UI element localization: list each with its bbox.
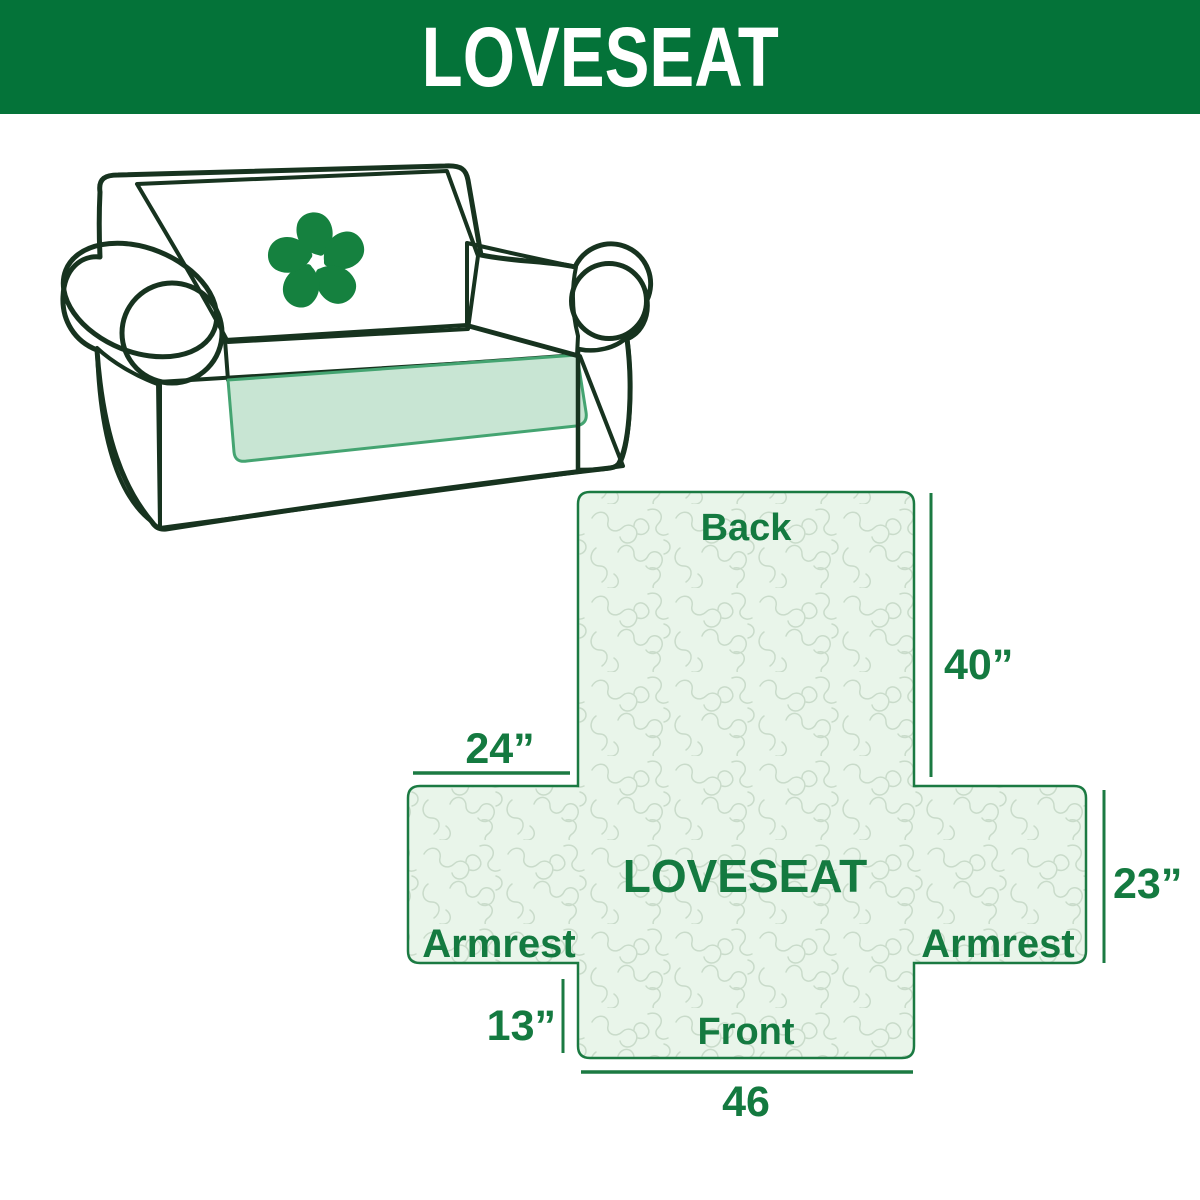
- dim-armrest-width-value: 24”: [465, 725, 534, 773]
- left-arm-panel: [97, 348, 160, 528]
- back-section-label: Back: [701, 507, 793, 549]
- dim-back-height-value: 40”: [944, 641, 1013, 689]
- header-banner: LOVESEAT: [0, 0, 1200, 114]
- dim-side-height-value: 23”: [1113, 860, 1182, 908]
- left-arm-scroll: [122, 283, 222, 383]
- right-arm-roll: [572, 264, 647, 339]
- dim-front-height-value: 13”: [487, 1002, 556, 1050]
- page-title: LOVESEAT: [421, 15, 778, 99]
- cover-dimension-diagram: Back LOVESEAT Armrest Armrest Front 40” …: [390, 470, 1200, 1140]
- armrest-right-label: Armrest: [921, 922, 1074, 966]
- pinwheel-center-dot: [310, 255, 324, 269]
- page: LOVESEAT: [0, 0, 1200, 1200]
- front-section-label: Front: [697, 1011, 794, 1053]
- armrest-left-label: Armrest: [422, 922, 575, 966]
- dim-front-width-value: 46: [722, 1078, 770, 1126]
- cover-shape-quilt-texture: [408, 492, 1086, 1058]
- seat-skirt-cover: [228, 355, 586, 461]
- center-loveseat-label: LOVESEAT: [623, 850, 868, 902]
- pinwheel-icon: [263, 212, 369, 314]
